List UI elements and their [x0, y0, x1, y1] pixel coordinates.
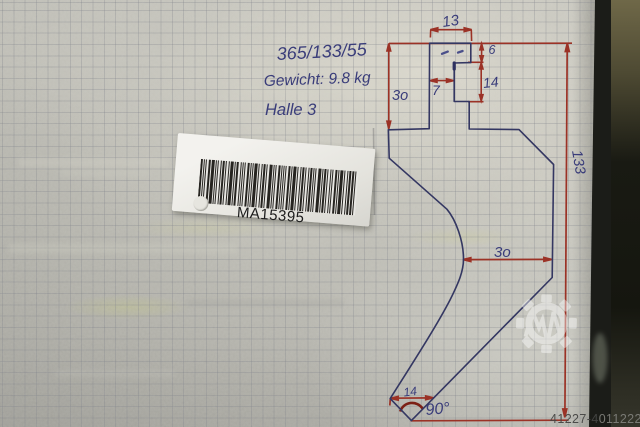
svg-text:Halle 3: Halle 3: [265, 101, 317, 119]
svg-text:7: 7: [432, 82, 441, 98]
svg-text:14: 14: [403, 384, 418, 400]
svg-text:3o: 3o: [392, 88, 408, 104]
svg-text:6: 6: [489, 43, 496, 57]
svg-text:365/133/55: 365/133/55: [276, 39, 368, 64]
svg-text:14: 14: [482, 73, 499, 91]
svg-text:Gewicht: 9.8 kg: Gewicht: 9.8 kg: [264, 69, 372, 90]
svg-text:3o: 3o: [494, 244, 511, 261]
svg-text:41227-4011222: 41227-4011222: [550, 412, 640, 426]
svg-text:133: 133: [568, 149, 588, 176]
svg-text:13: 13: [441, 12, 461, 31]
